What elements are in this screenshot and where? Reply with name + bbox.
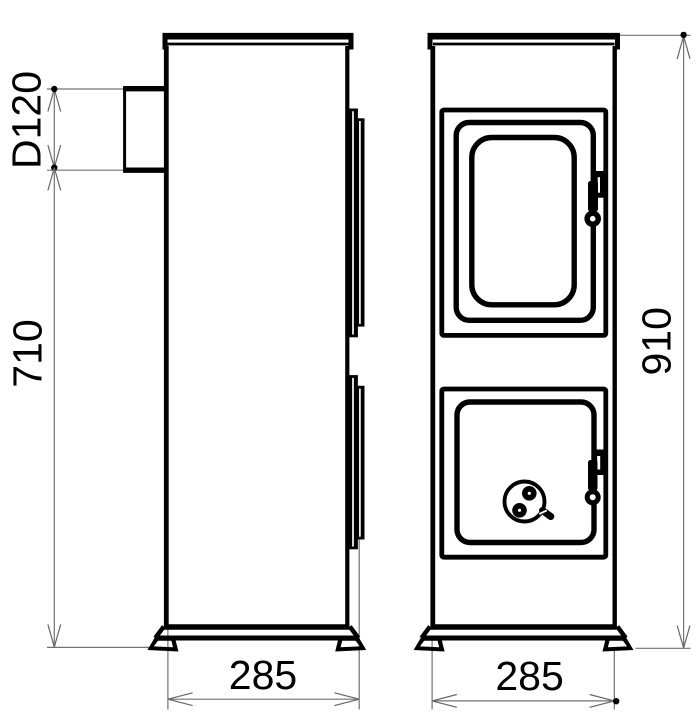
svg-text:710: 710 (5, 319, 51, 387)
svg-text:285: 285 (495, 653, 563, 699)
svg-text:285: 285 (229, 652, 297, 698)
svg-text:D120: D120 (4, 71, 50, 169)
svg-text:910: 910 (633, 307, 679, 375)
